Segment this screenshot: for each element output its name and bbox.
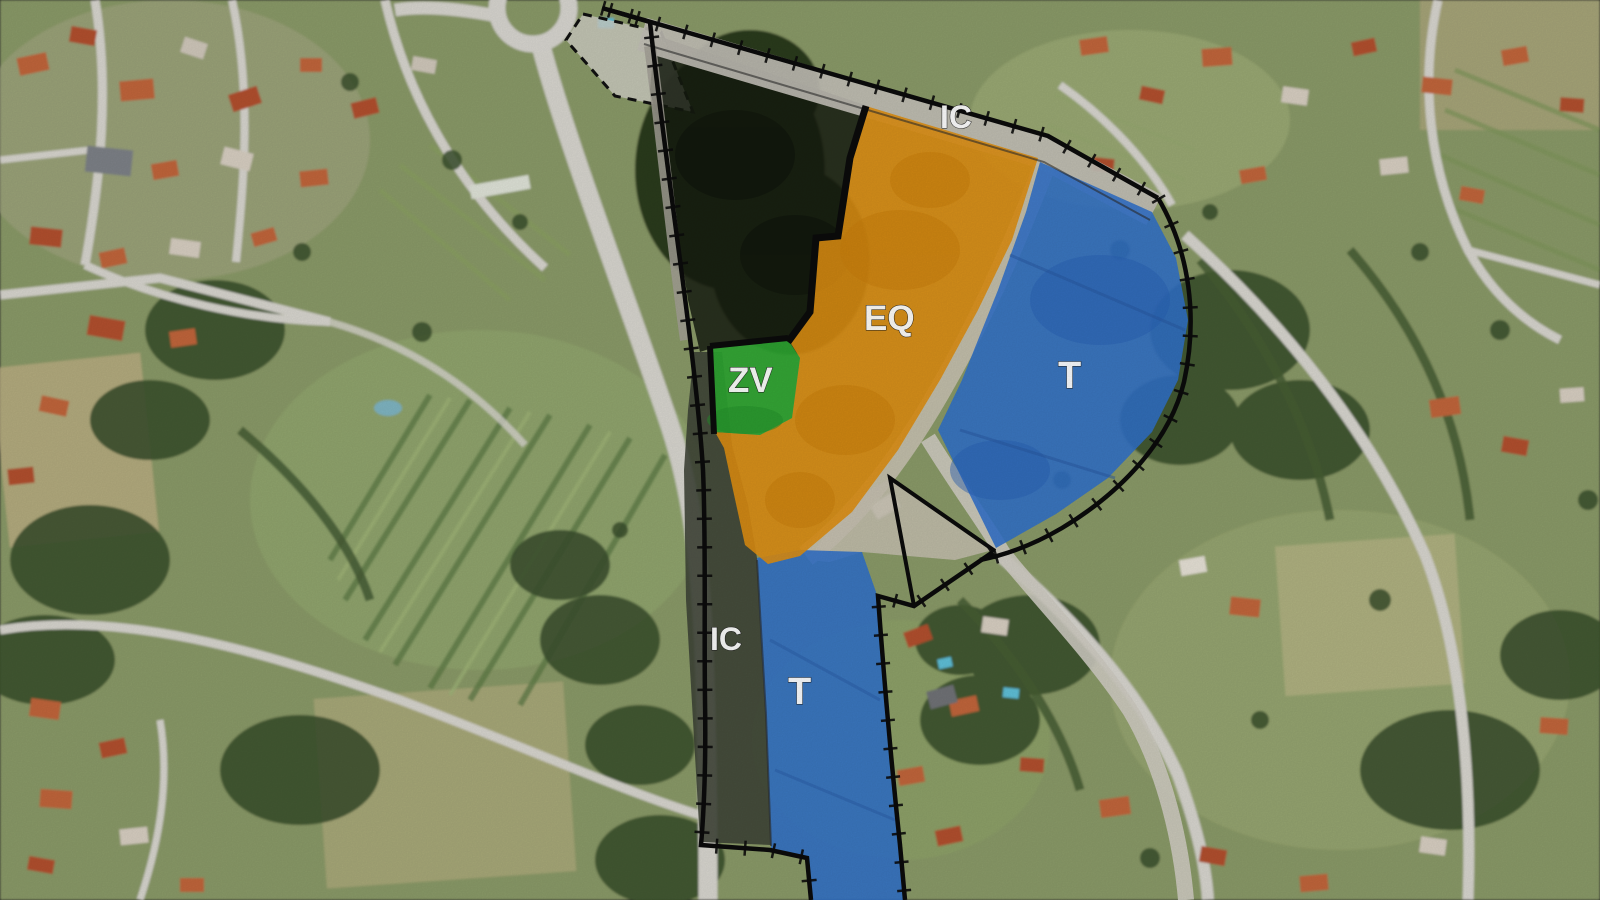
zoning-map: IC EQ ZV T IC T bbox=[0, 0, 1600, 900]
grain-overlay bbox=[0, 0, 1600, 900]
